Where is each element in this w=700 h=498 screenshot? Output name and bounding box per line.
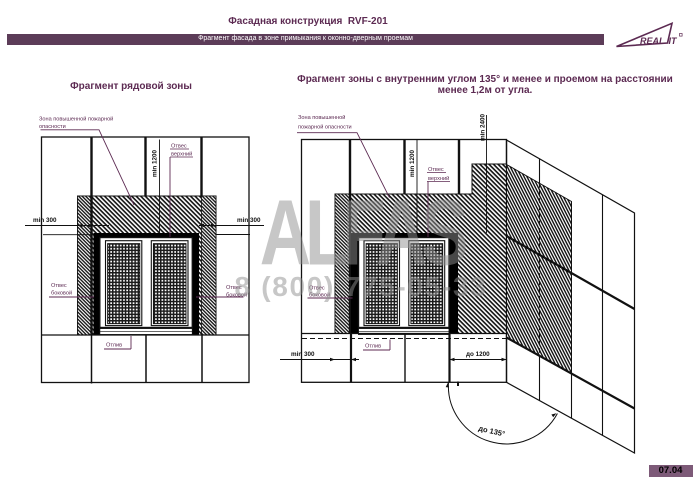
svg-text:Зона повышенной пожарной: Зона повышенной пожарной: [39, 116, 113, 123]
svg-text:опасности: опасности: [39, 124, 66, 130]
svg-text:пожарной опасности: пожарной опасности: [298, 124, 352, 131]
svg-text:min 1200: min 1200: [152, 150, 159, 177]
svg-text:min 300: min 300: [291, 351, 315, 358]
svg-text:до 135°: до 135°: [478, 424, 506, 439]
svg-text:Отлив: Отлив: [365, 344, 381, 350]
svg-text:min 300: min 300: [237, 217, 261, 224]
svg-text:min 2400: min 2400: [480, 114, 487, 141]
svg-text:Отлив: Отлив: [106, 343, 122, 349]
svg-text:ALFAS: ALFAS: [260, 180, 466, 284]
svg-text:min 1200: min 1200: [409, 150, 416, 177]
svg-text:8 (800) 775-05-33: 8 (800) 775-05-33: [234, 271, 487, 302]
svg-text:верхний: верхний: [171, 151, 192, 158]
svg-text:до 1200: до 1200: [466, 351, 490, 358]
svg-text:Отвес: Отвес: [51, 283, 67, 289]
svg-text:min 300: min 300: [33, 217, 57, 224]
svg-text:Зона повышенной: Зона повышенной: [298, 114, 345, 121]
svg-text:боковой: боковой: [51, 290, 72, 297]
